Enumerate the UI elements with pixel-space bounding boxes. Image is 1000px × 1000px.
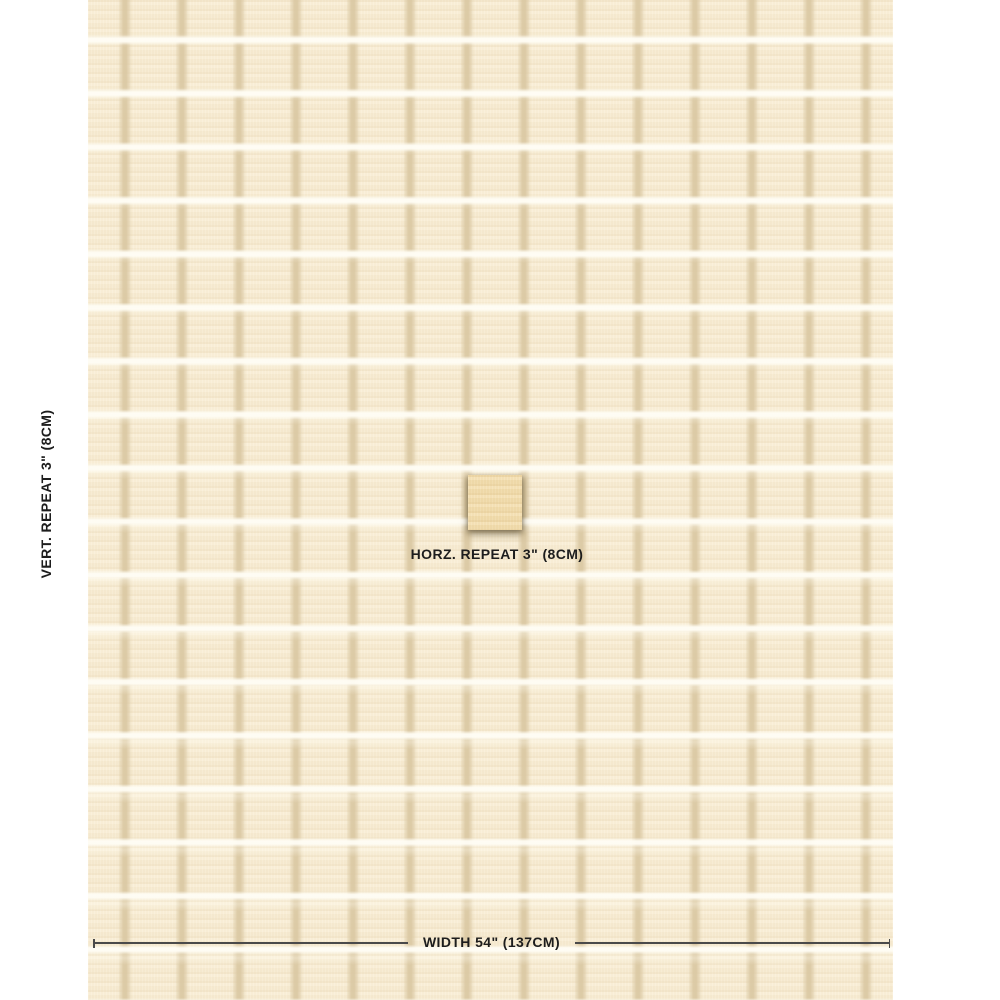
width-measure-left-line <box>95 942 408 943</box>
horizontal-repeat-label: HORZ. REPEAT 3" (8CM) <box>411 546 584 562</box>
product-image-canvas: VERT. REPEAT 3" (8CM) HORZ. REPEAT 3" (8… <box>0 0 1000 1000</box>
width-measure-right-tick <box>889 939 891 948</box>
width-measure-right-line <box>575 942 888 943</box>
width-measure: WIDTH 54" (137CM) <box>93 934 890 952</box>
width-label: WIDTH 54" (137CM) <box>423 934 560 950</box>
vertical-repeat-label: VERT. REPEAT 3" (8CM) <box>38 410 54 579</box>
repeat-square-tile <box>468 475 522 530</box>
